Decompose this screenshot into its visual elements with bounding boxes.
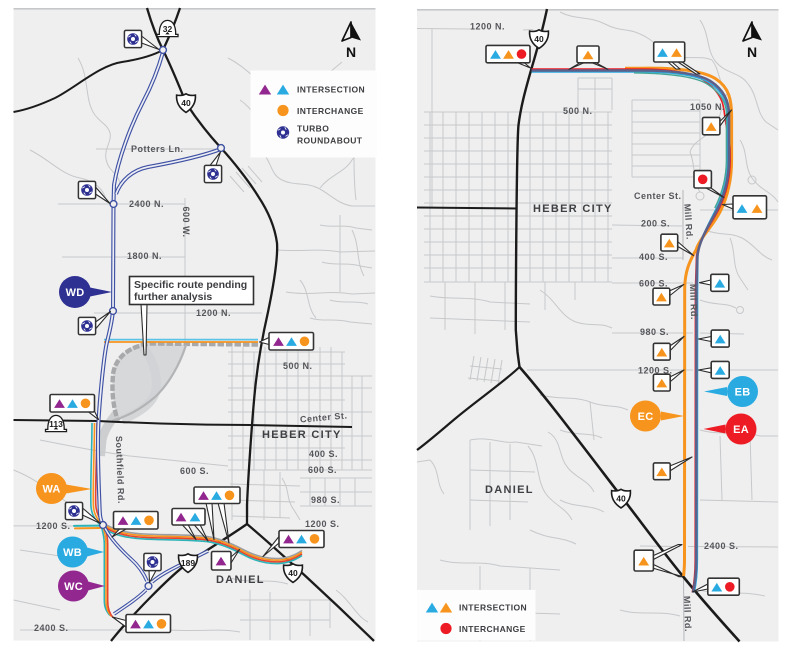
svg-text:WC: WC xyxy=(64,581,83,593)
svg-text:EA: EA xyxy=(733,424,749,436)
svg-text:500 N.: 500 N. xyxy=(563,106,593,116)
svg-text:189: 189 xyxy=(181,558,195,568)
svg-text:DANIEL: DANIEL xyxy=(216,574,265,586)
svg-text:N: N xyxy=(747,44,757,60)
svg-text:1200 S.: 1200 S. xyxy=(305,519,340,529)
svg-text:Specific route pending: Specific route pending xyxy=(134,279,247,291)
svg-text:980 S.: 980 S. xyxy=(640,327,669,337)
svg-text:Potters Ln.: Potters Ln. xyxy=(131,144,184,154)
svg-text:2400 S.: 2400 S. xyxy=(34,623,69,633)
svg-text:600 S.: 600 S. xyxy=(180,466,209,476)
svg-text:40: 40 xyxy=(534,34,544,44)
svg-text:INTERCHANGE: INTERCHANGE xyxy=(297,106,364,116)
svg-text:600 S.: 600 S. xyxy=(308,465,337,475)
svg-text:EB: EB xyxy=(735,387,751,399)
svg-text:WB: WB xyxy=(63,547,82,559)
svg-text:600 W.: 600 W. xyxy=(181,206,191,237)
svg-text:400 S.: 400 S. xyxy=(639,252,668,262)
svg-text:HEBER CITY: HEBER CITY xyxy=(533,203,613,215)
svg-text:40: 40 xyxy=(181,98,191,108)
svg-text:40: 40 xyxy=(288,568,298,578)
svg-text:600 S.: 600 S. xyxy=(639,279,668,289)
svg-text:INTERSECTION: INTERSECTION xyxy=(459,603,527,613)
svg-text:1200 N.: 1200 N. xyxy=(470,22,505,32)
svg-text:HEBER CITY: HEBER CITY xyxy=(262,429,342,441)
svg-text:1050 N.: 1050 N. xyxy=(690,102,725,112)
svg-text:WD: WD xyxy=(66,287,85,299)
svg-text:ROUNDABOUT: ROUNDABOUT xyxy=(297,136,363,146)
svg-text:200 S.: 200 S. xyxy=(641,219,670,229)
svg-text:1200 S.: 1200 S. xyxy=(36,521,71,531)
svg-text:INTERSECTION: INTERSECTION xyxy=(297,85,365,95)
svg-text:400 S.: 400 S. xyxy=(309,449,338,459)
svg-text:2400 S.: 2400 S. xyxy=(704,541,739,551)
svg-text:500 N.: 500 N. xyxy=(283,361,313,371)
svg-text:1200 S.: 1200 S. xyxy=(638,366,673,376)
svg-text:WA: WA xyxy=(42,484,60,496)
svg-text:Center St.: Center St. xyxy=(634,191,682,201)
svg-text:TURBO: TURBO xyxy=(297,124,329,134)
svg-text:INTERCHANGE: INTERCHANGE xyxy=(459,624,526,634)
svg-text:1800 N.: 1800 N. xyxy=(127,251,162,261)
svg-text:32: 32 xyxy=(163,24,173,34)
svg-text:N: N xyxy=(346,44,356,60)
svg-text:980 S.: 980 S. xyxy=(311,495,340,505)
svg-text:further analysis: further analysis xyxy=(134,291,212,303)
svg-text:2400 N.: 2400 N. xyxy=(129,199,164,209)
svg-text:Mill Rd.: Mill Rd. xyxy=(682,596,693,632)
svg-text:EC: EC xyxy=(638,411,654,423)
svg-text:DANIEL: DANIEL xyxy=(485,484,534,496)
svg-text:113: 113 xyxy=(49,419,63,429)
svg-text:Mill Rd.: Mill Rd. xyxy=(688,284,699,320)
svg-text:40: 40 xyxy=(616,494,626,504)
svg-text:1200 N.: 1200 N. xyxy=(196,308,231,318)
